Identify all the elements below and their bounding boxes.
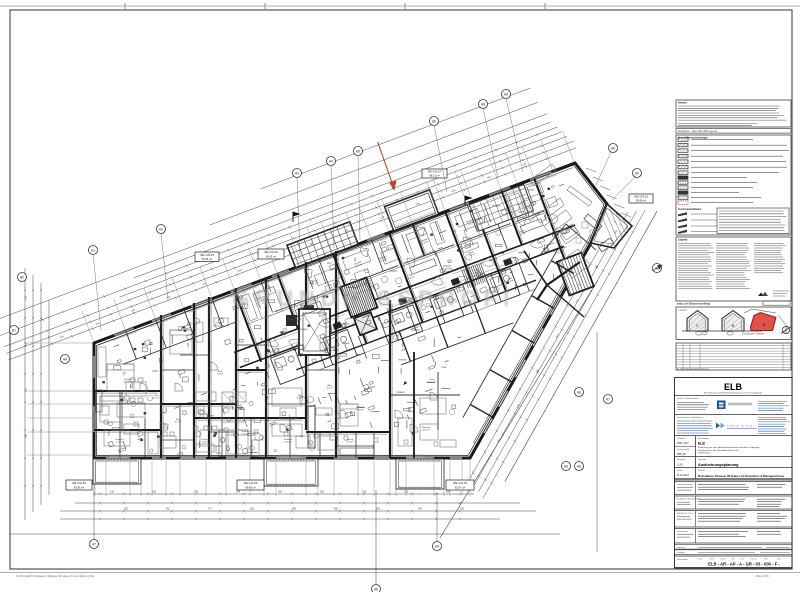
svg-text:Freigabe: Freigabe xyxy=(677,552,686,554)
svg-text:8,2 m²: 8,2 m² xyxy=(297,397,303,400)
svg-text:5,4 m²: 5,4 m² xyxy=(153,397,159,400)
svg-text:Massstab: Massstab xyxy=(677,458,685,461)
svg-text:Stand: Stand xyxy=(677,469,682,472)
svg-text:A8: A8 xyxy=(374,587,378,591)
svg-text:Zimmer 1: Zimmer 1 xyxy=(115,438,125,441)
svg-text:218: 218 xyxy=(362,491,367,494)
svg-text:Geb.: Geb. xyxy=(731,558,735,560)
svg-text:Geschoss: Geschoss xyxy=(749,558,756,560)
svg-text:A2: A2 xyxy=(159,227,163,231)
svg-text:210: 210 xyxy=(25,295,28,300)
svg-text:Tragwerksplanung: Tragwerksplanung xyxy=(677,483,692,486)
svg-text:A6: A6 xyxy=(611,146,615,150)
svg-text:A3: A3 xyxy=(295,171,299,175)
svg-text:A9: A9 xyxy=(504,92,508,96)
svg-text:146: 146 xyxy=(194,491,199,494)
svg-text:Plot: 1:50: Plot: 1:50 xyxy=(756,574,769,578)
svg-text:AF: AF xyxy=(635,171,639,175)
svg-text:Vermessung: Vermessung xyxy=(677,530,688,533)
svg-text:Zimmer 2: Zimmer 2 xyxy=(241,430,251,433)
svg-text:488: 488 xyxy=(25,433,28,438)
svg-text:510: 510 xyxy=(110,491,115,494)
svg-text:2,4 m²: 2,4 m² xyxy=(327,387,333,390)
svg-text:951: 951 xyxy=(166,508,171,511)
svg-text:A8: A8 xyxy=(564,464,568,468)
svg-text:525: 525 xyxy=(124,508,129,511)
svg-text:Projekt Nr.: Projekt Nr. xyxy=(677,437,686,440)
svg-text:A4: A4 xyxy=(329,159,333,163)
svg-text:Potsdamer Strasse 30 (Haus A): Potsdamer Strasse 30 (Haus A) Grundriss … xyxy=(698,474,785,478)
svg-text:A: A xyxy=(763,322,766,327)
svg-text:1 MFH ELB Potsdamer Strasse: 1 MFH ELB Potsdamer Strasse 30 Haus A Gr… xyxy=(16,574,95,578)
svg-text:83.83 m²: 83.83 m² xyxy=(74,486,84,490)
svg-text:92.97 m²: 92.97 m² xyxy=(455,486,465,490)
svg-text:Bestehend aus der Potsdamer St: Bestehend aus der Potsdamer Strasse 30 xyxy=(698,449,739,452)
svg-text:Plannummer: Plannummer xyxy=(677,558,688,561)
svg-text:1:50: 1:50 xyxy=(677,462,683,466)
svg-text:2021_007: 2021_007 xyxy=(677,441,689,445)
svg-text:WE 4.03.02: WE 4.03.02 xyxy=(634,195,648,199)
svg-text:236: 236 xyxy=(404,491,409,494)
svg-text:Flur: Flur xyxy=(298,394,302,397)
svg-text:182: 182 xyxy=(278,491,283,494)
svg-text:A6: A6 xyxy=(432,119,436,123)
svg-text:A8: A8 xyxy=(481,102,485,106)
svg-text:333: 333 xyxy=(460,508,465,511)
svg-text:lfd.Nr.: lfd.Nr. xyxy=(764,558,769,560)
svg-text:22,15 m²: 22,15 m² xyxy=(124,381,133,384)
svg-text:B: B xyxy=(732,323,735,328)
svg-text:Plantitel: Plantitel xyxy=(698,469,705,472)
svg-text:128: 128 xyxy=(152,491,157,494)
svg-text:WE 4.02.02: WE 4.02.02 xyxy=(72,481,86,485)
svg-text:6,1 m²: 6,1 m² xyxy=(175,421,181,424)
svg-text:Bauvorhaben: Bauvorhaben xyxy=(698,437,709,440)
svg-text:ELB - AR - AP - A - GR - 03 -: ELB - AR - AP - A - GR - 03 - 000 - F - xyxy=(708,561,780,566)
svg-text:13,9 m²: 13,9 m² xyxy=(356,409,364,412)
svg-text:12,1 m²: 12,1 m² xyxy=(428,381,436,384)
svg-text:Errichtung von zwei Mehrfamili: Errichtung von zwei Mehrfamilienhaeusern… xyxy=(704,391,763,394)
svg-text:66.11 m²: 66.11 m² xyxy=(429,174,439,178)
svg-text:9,8 m²: 9,8 m² xyxy=(202,441,208,444)
svg-text:Bauherr / Objektanschrift: Bauherr / Objektanschrift xyxy=(677,397,698,400)
svg-text:A7: A7 xyxy=(92,542,96,546)
svg-text:A5: A5 xyxy=(356,149,360,153)
svg-text:14,2 m²: 14,2 m² xyxy=(116,441,124,444)
svg-text:Generalplaner / Objektplanung: Generalplaner / Objektplanung xyxy=(677,416,703,419)
svg-text:ELB: ELB xyxy=(698,441,705,445)
svg-text:WE 4.02.03: WE 4.02.03 xyxy=(453,481,467,485)
svg-text:B0: B0 xyxy=(20,275,24,279)
svg-text:C: C xyxy=(696,323,699,328)
svg-text:006_03: 006_03 xyxy=(677,452,686,456)
svg-text:WE 4.02.04: WE 4.02.04 xyxy=(244,481,258,485)
svg-text:B1: B1 xyxy=(12,328,16,332)
svg-text:Fussbodenaufbauten: Fussbodenaufbauten xyxy=(678,208,702,211)
svg-text:429: 429 xyxy=(292,508,297,511)
svg-text:Index: Index xyxy=(777,558,781,560)
svg-text:Lageplan: Lageplan xyxy=(678,310,688,312)
svg-text:WE 4.02.06: WE 4.02.06 xyxy=(264,250,278,254)
svg-text:ELB: ELB xyxy=(724,382,743,392)
svg-text:Gewerk: Gewerk xyxy=(709,558,715,560)
svg-text:Geprueft: Geprueft xyxy=(677,546,685,549)
svg-text:Hinweis: Hinweis xyxy=(678,101,688,104)
svg-text:B R A N D S C H U T Z: B R A N D S C H U T Z xyxy=(677,512,697,515)
svg-text:A9: A9 xyxy=(435,544,439,548)
svg-text:Potsdamer Strasse: Potsdamer Strasse xyxy=(742,332,765,336)
svg-text:Zeichnungs Nr.: Zeichnungs Nr. xyxy=(677,448,690,451)
svg-text:A1: A1 xyxy=(91,248,95,252)
svg-text:49.05 m²: 49.05 m² xyxy=(202,257,212,261)
svg-text:bau.con Bauconsulting: bau.con Bauconsulting xyxy=(677,302,710,306)
svg-text:Ausfuehrungsplanung: Ausfuehrungsplanung xyxy=(698,463,739,467)
svg-text:89.65 m²: 89.65 m² xyxy=(245,486,255,490)
svg-text:24,6 m²: 24,6 m² xyxy=(284,441,292,444)
svg-text:AE: AE xyxy=(577,464,581,468)
svg-text:WE 4.02.05: WE 4.02.05 xyxy=(200,253,214,257)
svg-text:Bauphysik / Waermeschutz: Bauphysik / Waermeschutz xyxy=(677,497,700,500)
svg-text:AE: AE xyxy=(577,390,581,394)
svg-text:11,3 m²: 11,3 m² xyxy=(346,441,354,444)
svg-text:Errichtung von zwei Mehrfamili: Errichtung von zwei Mehrfamilienhaeusern… xyxy=(698,446,760,449)
svg-text:807: 807 xyxy=(418,508,423,511)
svg-text:95.04 m²: 95.04 m² xyxy=(636,199,646,203)
svg-text:903: 903 xyxy=(250,508,255,511)
svg-text:01 04.24 Planstand Ausfuehr: 01 04.24 Planstand Ausfuehrung xyxy=(677,367,710,370)
svg-text:GRUNDRISSPROFI: GRUNDRISSPROFI xyxy=(232,286,515,311)
svg-text:5,9 m²: 5,9 m² xyxy=(217,373,223,376)
svg-text:Abst.: Abst. xyxy=(328,384,333,387)
svg-text:66.05 m²: 66.05 m² xyxy=(266,255,276,259)
svg-text:12,4 m²: 12,4 m² xyxy=(242,433,250,436)
svg-text:164: 164 xyxy=(236,491,241,494)
svg-text:855: 855 xyxy=(334,508,339,511)
svg-text:Legende: Legende xyxy=(678,240,688,242)
svg-text:14167 Berlin: 14167 Berlin xyxy=(698,452,711,455)
svg-text:Planinhalt: Planinhalt xyxy=(698,458,707,461)
svg-text:436: 436 xyxy=(25,341,28,346)
svg-text:WE 4.02.07: WE 4.02.07 xyxy=(428,170,442,174)
svg-text:200: 200 xyxy=(320,491,325,494)
svg-text:262: 262 xyxy=(25,387,28,392)
svg-text:477: 477 xyxy=(208,508,213,511)
svg-text:11.10.2024: 11.10.2024 xyxy=(677,474,689,477)
svg-text:Schraffuren - siehe DIN 1356: Schraffuren - siehe DIN 1356 Legende xyxy=(678,130,718,133)
svg-text:381: 381 xyxy=(376,508,381,511)
svg-text:infra plan: infra plan xyxy=(727,424,753,428)
svg-text:A7: A7 xyxy=(606,397,610,401)
svg-text:26,8 m²: 26,8 m² xyxy=(422,429,430,432)
